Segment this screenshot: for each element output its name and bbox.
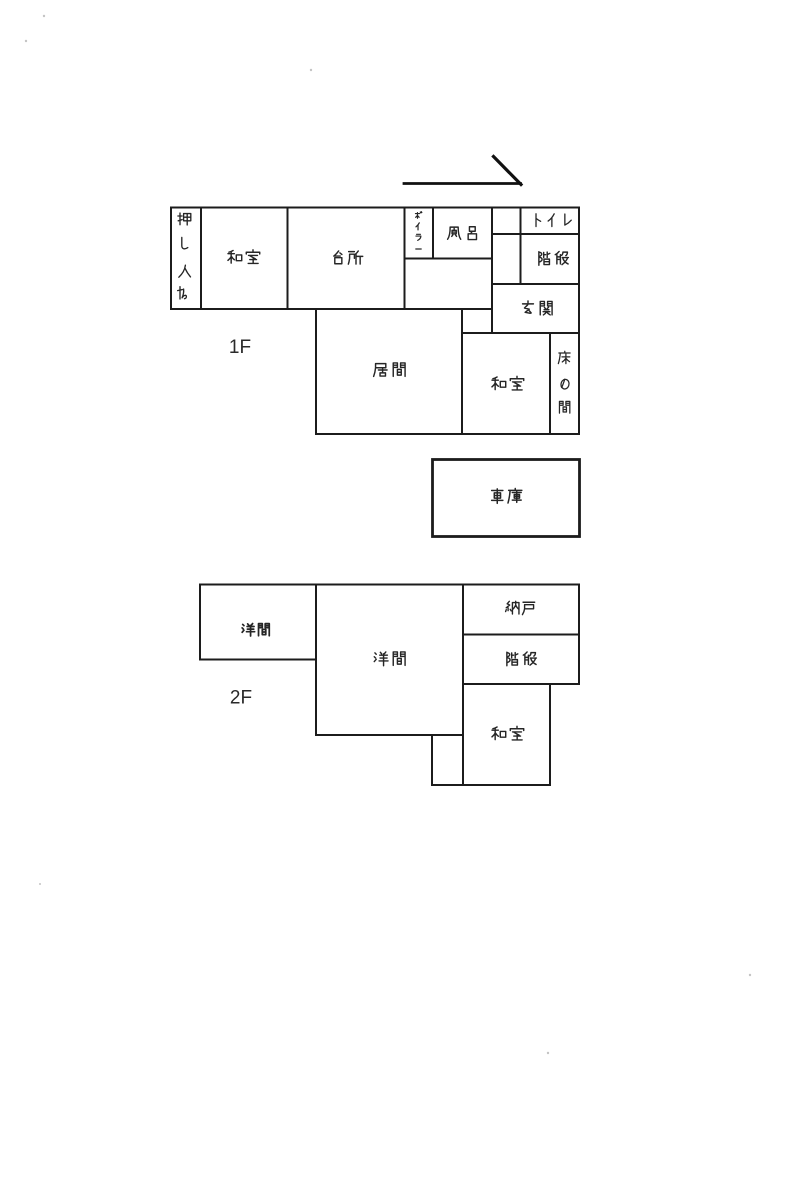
svg-text:1F: 1F bbox=[229, 337, 251, 358]
svg-text:2F: 2F bbox=[230, 688, 252, 709]
